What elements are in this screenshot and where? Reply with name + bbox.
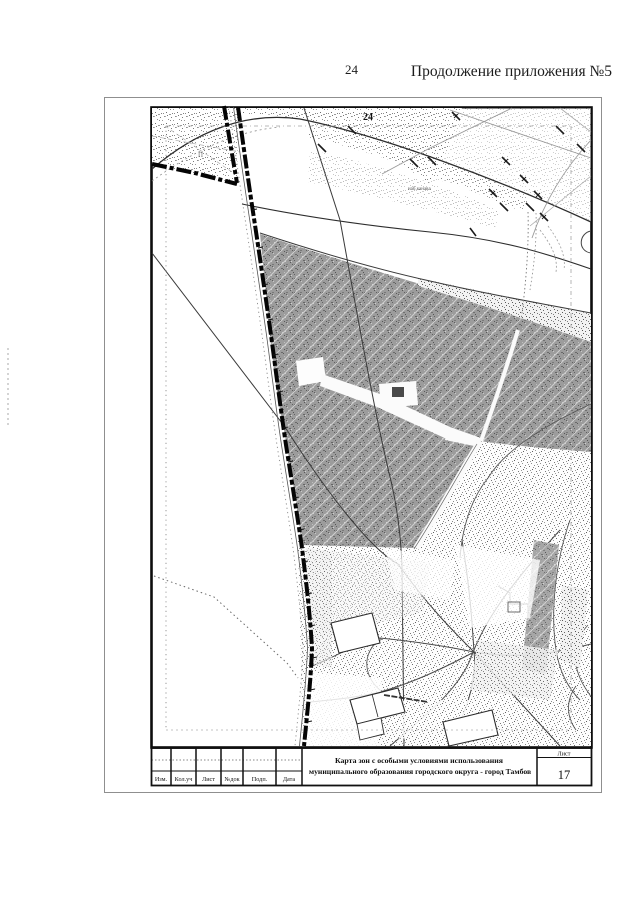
svg-text:П: П [198,151,203,159]
svg-text:Продолжение приложения №5: Продолжение приложения №5 [411,63,612,80]
svg-text:Изм.: Изм. [155,776,168,783]
svg-text:№док: №док [224,776,240,783]
svg-text:17: 17 [558,768,571,782]
svg-text:24: 24 [345,62,359,77]
svg-text:Лист: Лист [202,776,215,783]
svg-text:Карта зон с особыми условиями: Карта зон с особыми условиями использова… [335,756,504,765]
svg-text:24: 24 [363,112,373,123]
svg-text:Подп.: Подп. [252,776,268,783]
svg-text:наб.канава: наб.канава [408,187,431,192]
svg-text:Кол.уч: Кол.уч [175,776,193,783]
svg-text:Дата: Дата [283,776,296,783]
svg-text:Лист: Лист [558,751,571,758]
svg-text:муниципального образования гор: муниципального образования городского ок… [309,767,531,776]
